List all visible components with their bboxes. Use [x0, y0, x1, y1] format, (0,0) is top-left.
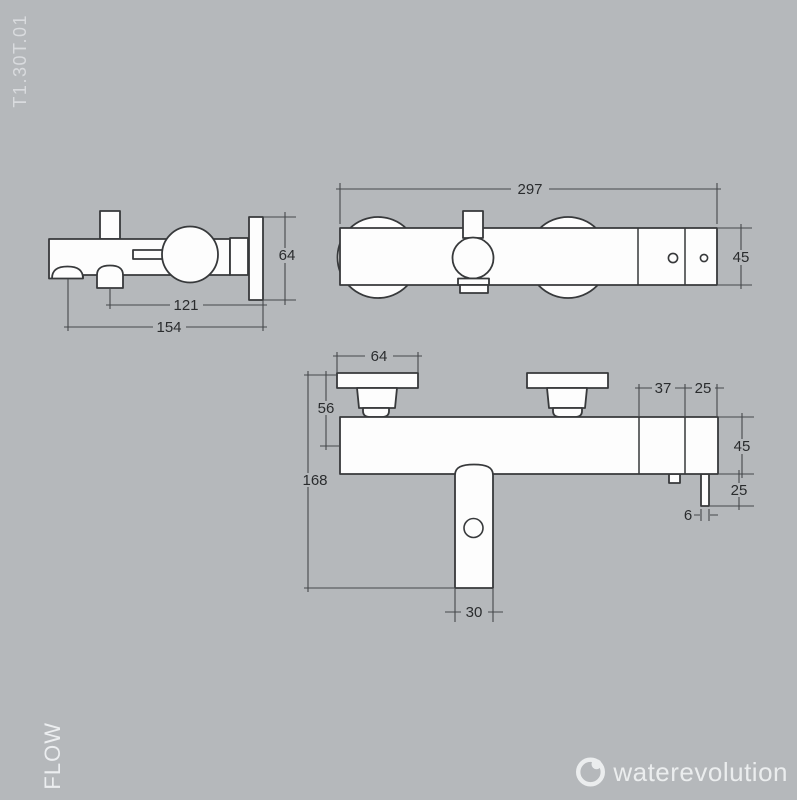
front-mount-collar-right	[547, 388, 587, 408]
front-wall-plate-left	[337, 373, 418, 388]
top-handle-knob	[453, 238, 494, 279]
front-view-drawing: 64 56 168 37 25 45 25 6 30	[295, 345, 765, 635]
front-mixer-body	[340, 417, 718, 474]
dim-front-outlet-drop: 25	[731, 482, 748, 499]
front-diverter-button	[464, 519, 483, 538]
series-label: FLOW	[40, 722, 66, 790]
side-wall-plate	[249, 217, 263, 300]
dim-front-spout-width: 30	[466, 604, 483, 621]
brand-name: waterevolution	[613, 759, 788, 785]
dim-top-total-width: 297	[517, 181, 542, 198]
front-check-valve-nub	[669, 474, 680, 483]
dim-front-plate-to-axis: 56	[318, 400, 335, 417]
dim-side-front-to-wall: 154	[156, 319, 181, 336]
dim-front-outlet-diameter: 6	[684, 507, 692, 524]
front-mount-neck-right	[553, 408, 582, 417]
side-cartridge	[230, 238, 248, 275]
side-handle-knob	[162, 227, 218, 283]
dim-top-body-depth: 45	[733, 249, 750, 266]
top-view-drawing: 297 45	[320, 170, 760, 305]
product-code: T1.30T.01	[10, 14, 31, 108]
dim-front-segment-25: 25	[695, 380, 712, 397]
dim-side-spout-to-wall: 121	[173, 297, 198, 314]
top-handle-base	[458, 279, 489, 286]
water-drop-icon	[575, 756, 606, 787]
top-lever-handle	[463, 211, 483, 238]
side-top-port	[100, 211, 120, 239]
dim-front-plate-width: 64	[371, 348, 388, 365]
brand-logo: waterevolution	[575, 756, 788, 787]
top-mixer-body	[340, 228, 717, 285]
dim-front-total-height: 168	[302, 472, 327, 489]
dim-side-plate-height: 64	[279, 247, 296, 264]
dim-front-segment-37: 37	[655, 380, 672, 397]
top-handle-base-lower	[460, 285, 488, 293]
top-hole-large	[668, 253, 677, 262]
drawing-sheet: T1.30T.01 FLOW 64 121 154	[0, 0, 797, 800]
dim-front-body-height: 45	[734, 438, 751, 455]
top-hole-small	[700, 254, 707, 261]
front-mount-neck-left	[363, 408, 389, 417]
front-wall-plate-right	[527, 373, 608, 388]
front-mount-collar-left	[357, 388, 397, 408]
side-view-drawing: 64 121 154	[30, 195, 310, 345]
front-outlet-tube	[701, 474, 709, 506]
